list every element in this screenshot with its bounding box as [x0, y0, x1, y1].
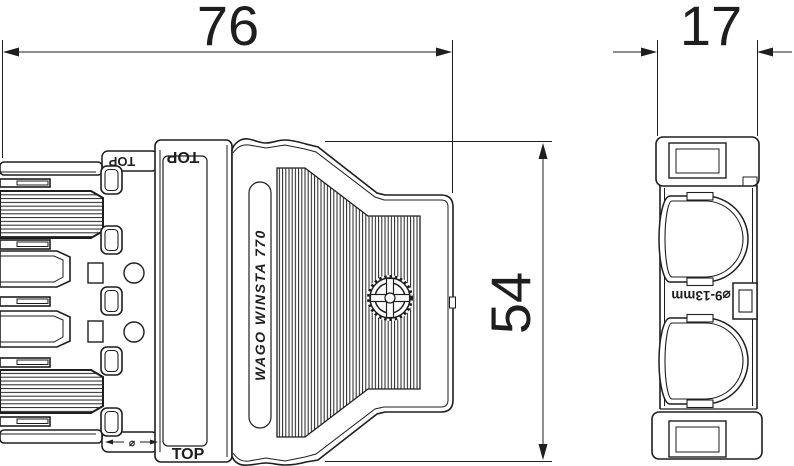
socket-column — [101, 166, 122, 436]
dimension-width-value: 76 — [197, 0, 259, 57]
clamp-notch — [687, 400, 713, 408]
thin-pin — [0, 417, 50, 426]
thin-pin — [0, 358, 50, 367]
ribbed-contact — [0, 191, 103, 238]
front-view — [0, 139, 456, 465]
socket-opening — [101, 287, 122, 315]
flat-pin — [0, 430, 102, 443]
diameter-symbol: ⌀ — [129, 438, 135, 449]
mating-face-plate — [155, 140, 232, 462]
socket-opening — [101, 347, 122, 375]
arrowhead-left-icon — [3, 48, 19, 57]
side-bottom-cap — [652, 412, 762, 459]
flat-pin — [0, 162, 102, 175]
top-marking-plate-lower: TOP — [172, 446, 205, 463]
cable-range-marking: ⌀9-13mm — [671, 288, 730, 303]
thin-pin — [0, 240, 50, 249]
knurled-screw — [367, 275, 413, 321]
clamp-notch — [687, 278, 713, 286]
guide-hole — [124, 263, 144, 283]
clamp-latch — [733, 283, 757, 319]
dimension-depth-value: 17 — [680, 0, 742, 57]
dimension-height-value: 54 — [479, 272, 542, 334]
arrowhead-down-icon — [539, 444, 548, 460]
drawing-canvas: 76 17 54 — [0, 0, 794, 466]
socket-opening — [101, 166, 122, 194]
thin-pin — [0, 179, 50, 187]
coding-slot — [88, 263, 103, 283]
ribbed-contact — [0, 370, 103, 413]
arrowhead-up-icon — [539, 143, 548, 159]
cover-notch — [450, 297, 456, 308]
arrowhead-left-icon — [757, 48, 773, 57]
cable-clamp-upper — [659, 193, 748, 286]
cable-clamp-lower — [659, 315, 748, 408]
arrowhead-right-icon — [641, 48, 657, 57]
technical-drawing: 76 17 54 — [0, 0, 794, 466]
top-marking-plate-upper: TOP — [166, 148, 199, 165]
top-marking-tab: TOP — [108, 154, 135, 169]
thin-pin — [0, 297, 50, 306]
clamp-notch — [687, 315, 713, 323]
clamp-notch — [687, 193, 713, 201]
socket-opening — [101, 226, 122, 254]
coding-slot — [88, 321, 103, 342]
socket-opening — [101, 408, 122, 436]
product-marking: WAGO WINSTA 770 — [252, 229, 268, 381]
screw-hub — [385, 293, 395, 303]
side-top-cap — [656, 137, 759, 186]
guide-hole — [124, 322, 144, 342]
arrowhead-right-icon — [436, 48, 452, 57]
